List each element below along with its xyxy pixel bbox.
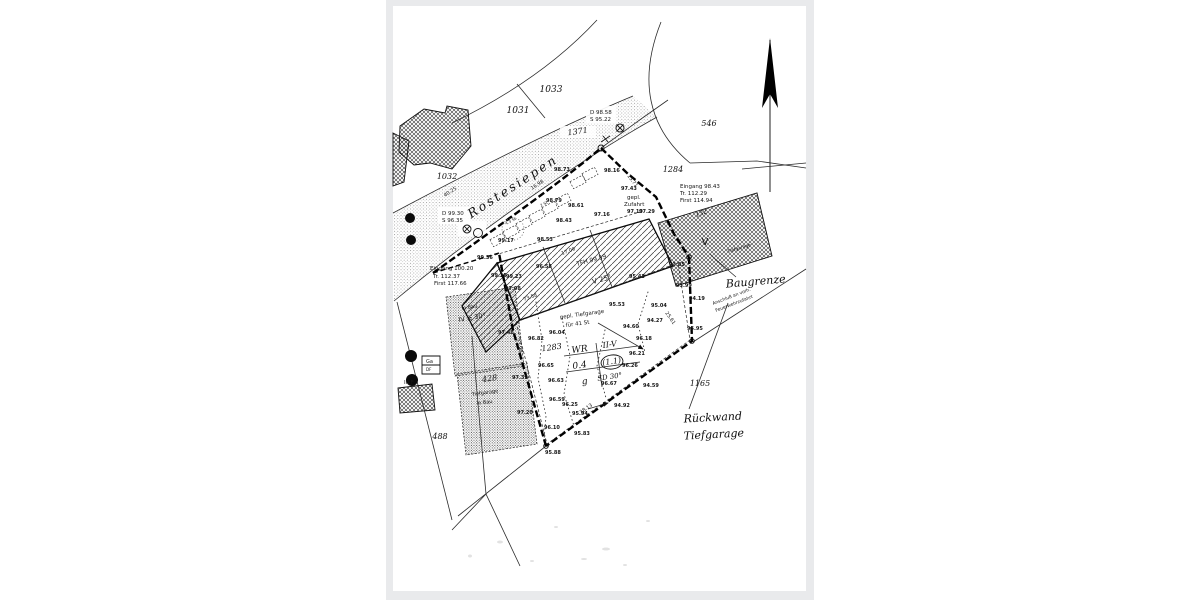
existing-building-iii-f bbox=[398, 384, 435, 413]
spot-9708: 97.08 bbox=[505, 286, 521, 292]
note-garage: Ga bbox=[426, 359, 433, 365]
note-eingang-west: Eingang 100.20 bbox=[430, 266, 474, 272]
note-s9635: S 96.35 bbox=[442, 218, 463, 224]
spot-9853: 98.53 bbox=[537, 237, 553, 243]
spot-9460: 94.60 bbox=[623, 324, 639, 330]
spot-9682: 96.82 bbox=[528, 336, 544, 342]
spot-9504: 95.04 bbox=[651, 303, 667, 309]
spot-9459: 94.59 bbox=[643, 383, 659, 389]
spot-9720: 97.20 bbox=[517, 410, 533, 416]
spot-9492: 94.92 bbox=[614, 403, 630, 409]
spot-9716: 97.16 bbox=[594, 212, 610, 218]
note-d9858: D 98.58 bbox=[590, 110, 612, 116]
parcel-546: 546 bbox=[701, 119, 716, 128]
note-zufahrt: Zufahrt bbox=[624, 202, 645, 208]
spot-9873: 98.73 bbox=[554, 167, 570, 173]
spot-9604: 96.04 bbox=[549, 330, 565, 336]
spot-9936: 99.36 bbox=[477, 255, 493, 261]
spot-9816: 98.16 bbox=[604, 168, 620, 174]
zoning-cell-grz: 0.4 bbox=[572, 360, 588, 372]
note-eingang-ost: Eingang 98.43 bbox=[680, 184, 720, 190]
spot-9427: 94.27 bbox=[647, 318, 663, 324]
spot-9667: 96.67 bbox=[601, 381, 617, 387]
note-first-ost: First 114.94 bbox=[680, 198, 713, 204]
spot-9588: 95.88 bbox=[545, 450, 561, 456]
spot-9419: 94.19 bbox=[689, 296, 705, 302]
note-iii-f: III F bbox=[404, 380, 414, 386]
note-first-west: First 117.66 bbox=[434, 281, 467, 287]
spot-9748: 97.48 bbox=[498, 330, 514, 336]
spot-9595: 95.95 bbox=[687, 326, 703, 332]
parcel-1165: 1165 bbox=[690, 379, 710, 388]
note-traufe-ost: Tr. 112.29 bbox=[679, 191, 708, 197]
note-df: DF bbox=[426, 367, 432, 372]
spot-9543: 95.43 bbox=[629, 274, 645, 280]
scanned-site-plan: Rostesiepen10331031103213715461284128311… bbox=[0, 0, 1200, 600]
spot-9665: 96.65 bbox=[538, 363, 554, 369]
spot-9925: 99.25 bbox=[491, 273, 507, 279]
spot-9553: 95.53 bbox=[609, 302, 625, 308]
spot-9923: 99.23 bbox=[506, 274, 522, 280]
spot-9610: 96.10 bbox=[544, 425, 560, 431]
spot-9917: 99.17 bbox=[498, 238, 514, 244]
spot-9729: 97.29 bbox=[639, 209, 655, 215]
spot-9385: 93.85 bbox=[669, 262, 685, 268]
parcel-488: 488 bbox=[431, 432, 447, 441]
spot-9621: 96.21 bbox=[629, 351, 645, 357]
parcel-1031: 1031 bbox=[507, 106, 530, 116]
spot-9399: 93.99 bbox=[676, 283, 692, 289]
spot-9663: 96.63 bbox=[548, 378, 564, 384]
spot-9843: 98.43 bbox=[556, 218, 572, 224]
note-storeys-v: V bbox=[702, 237, 709, 248]
spot-9583: 95.83 bbox=[574, 431, 590, 437]
parcel-1284: 1284 bbox=[663, 165, 683, 174]
spot-9879: 98.79 bbox=[546, 198, 562, 204]
note-s9522: S 95.22 bbox=[590, 117, 611, 123]
spot-9626: 96.26 bbox=[622, 363, 638, 369]
spot-9618: 96.18 bbox=[636, 336, 652, 342]
site-plan-svg: Rostesiepen10331031103213715461284128311… bbox=[0, 0, 1200, 600]
spot-9658: 96.58 bbox=[536, 264, 552, 270]
parcel-1032: 1032 bbox=[437, 172, 457, 181]
note-gepl: gepl. bbox=[627, 195, 641, 201]
parcel-1033: 1033 bbox=[540, 85, 563, 95]
note-d9930: D 99.30 bbox=[442, 211, 464, 217]
spot-9739: 97.39 bbox=[512, 375, 528, 381]
spot-9659: 96.59 bbox=[549, 397, 565, 403]
note-traufe-west: Tr. 112.37 bbox=[432, 274, 461, 280]
spot-9861: 98.61 bbox=[568, 203, 584, 209]
